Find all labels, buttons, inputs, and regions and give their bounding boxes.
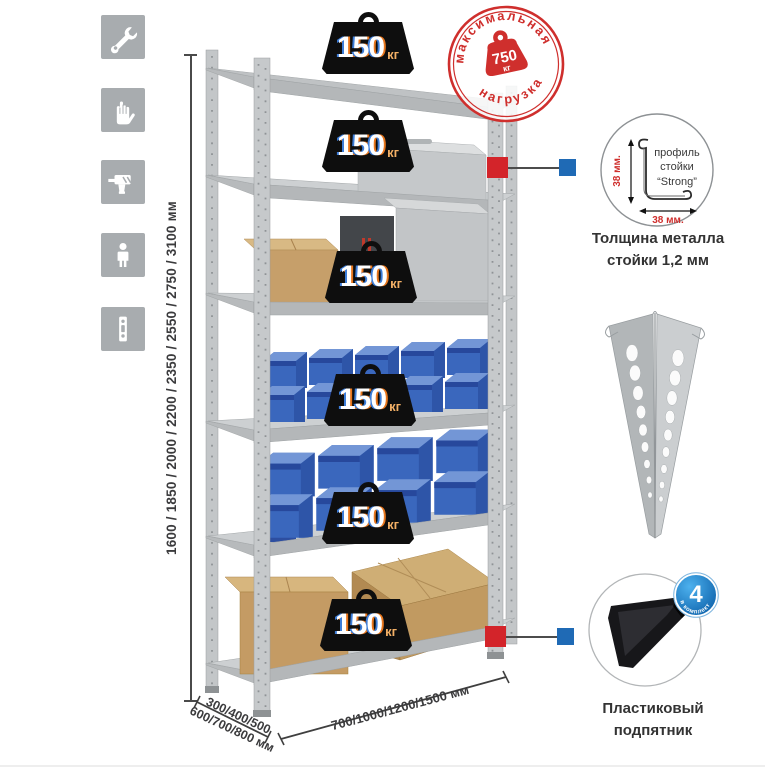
shelf-load-badge-1: 150кг	[322, 12, 414, 74]
shelf-load-badge-4: 150кг	[324, 364, 416, 426]
profile-label-1: профиль	[654, 147, 700, 159]
foot-badge-count: 4	[689, 581, 703, 608]
blue-marker	[559, 159, 576, 176]
blue-marker	[557, 628, 574, 645]
profile-vertical-dim: 38 мм.	[612, 155, 623, 187]
shelf-load-badge-5: 150кг	[322, 482, 414, 544]
red-marker	[485, 626, 506, 647]
product-infographic: 1600 / 1850 / 2000 / 2200 / 2350 / 2550 …	[0, 0, 765, 767]
profile-label-3: “Strong”	[657, 176, 697, 188]
gloves-icon	[106, 93, 140, 127]
connector-top	[487, 157, 576, 178]
connector-bottom	[485, 626, 574, 647]
wrench-icon	[106, 20, 140, 54]
perforated-post-icon	[106, 312, 140, 346]
post-profile-image	[595, 298, 715, 546]
sidebar-icon-person	[101, 233, 145, 277]
max-load-stamp: максимальная нагрузка 750 кг	[443, 1, 569, 127]
foot-detail-circle: 4 в комплекте	[583, 566, 719, 702]
shelf-load-badge-3: 150кг	[325, 241, 417, 303]
profile-horizontal-dim: 38 мм.	[652, 215, 684, 226]
connector-line	[508, 167, 559, 169]
sidebar-icon-rack-post	[101, 307, 145, 351]
person-icon	[106, 238, 140, 272]
foot-caption: Пластиковый подпятник	[578, 698, 728, 742]
profile-caption: Толщина металла стойки 1,2 мм	[578, 228, 738, 272]
profile-detail-circle: 38 мм. 38 мм. профиль стойки “Strong”	[598, 112, 716, 230]
shelf-load-badge-2: 150кг	[322, 110, 414, 172]
sidebar-icon-wrench	[101, 15, 145, 59]
shelf-load-badge-6: 150кг	[320, 589, 412, 651]
sidebar-icon-drill	[101, 160, 145, 204]
profile-label-2: стойки	[660, 161, 694, 173]
sidebar-icon-gloves	[101, 88, 145, 132]
drill-icon	[106, 165, 140, 199]
height-dimension-label: 1600 / 1850 / 2000 / 2200 / 2350 / 2550 …	[164, 54, 182, 702]
red-marker	[487, 157, 508, 178]
connector-line	[506, 636, 557, 638]
